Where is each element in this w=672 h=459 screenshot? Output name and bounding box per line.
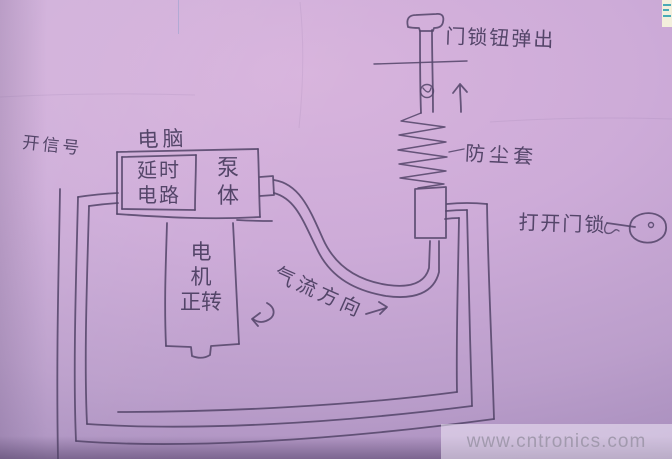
dust-boot-bellows — [398, 113, 447, 188]
airflow-arrow-icon — [366, 302, 387, 314]
delay-circuit-line1: 延时 — [125, 159, 193, 184]
paper-creases — [0, 2, 672, 128]
label-motor-forward: 电 机 正转 — [166, 240, 236, 315]
label-open-door-lock: 打开门锁 — [518, 206, 607, 238]
label-computer: 电脑 — [137, 122, 188, 154]
piston-shaft — [420, 30, 434, 113]
motor-line3: 正转 — [166, 290, 236, 315]
pump-nozzle — [260, 176, 274, 196]
lock-knob — [407, 14, 443, 31]
actuator-cylinder — [415, 187, 446, 238]
photo-of-hand-drawn-diagram: 开信号 电脑 延时 电路 泵 体 电 机 正转 气流方向 门锁钮弹出 防尘套 打… — [0, 0, 672, 459]
label-pump-body: 泵 体 — [203, 154, 253, 210]
rotation-arrow-icon — [252, 303, 274, 326]
label-delay-circuit: 延时 电路 — [125, 159, 193, 209]
watermark-text: www.cntronics.com — [467, 431, 647, 453]
label-lock-knob-pop-out: 门锁钮弹出 — [445, 20, 556, 53]
pump-body-line2: 体 — [203, 182, 253, 210]
dust-cover-leader — [449, 149, 464, 152]
delay-circuit-line2: 电路 — [125, 184, 193, 209]
up-arrow-icon — [453, 84, 467, 112]
motor-line1: 电 — [166, 240, 236, 265]
door-panel-outline — [57, 189, 494, 459]
pump-body-line1: 泵 — [203, 154, 253, 182]
corner-artifact — [662, 0, 672, 27]
key-icon — [605, 213, 666, 243]
watermark-bar: www.cntronics.com — [441, 424, 672, 459]
motor-line2: 机 — [166, 265, 236, 290]
label-dust-cover: 防尘套 — [464, 137, 537, 170]
faint-blue-line — [178, 0, 179, 34]
